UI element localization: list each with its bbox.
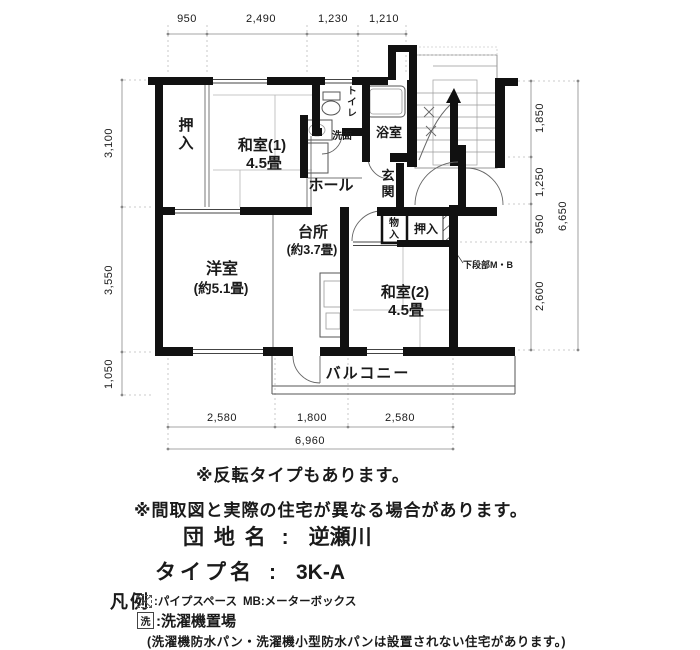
room-bath: 浴室 (376, 125, 402, 140)
floorplan-drawing: 押入 和室(1) 4.5畳 トイレ 洗面 浴室 玄関 ホール 台所 (約3.7畳… (0, 0, 700, 460)
room-washitsu2-name: 和室(2) (381, 283, 429, 301)
dim-right-total: 6,650 (557, 201, 569, 231)
dim-right-1: 1,850 (534, 103, 546, 133)
bathtub-icon (367, 86, 405, 117)
dim-left-3: 1,050 (103, 359, 115, 389)
danchi-name-separator: : (282, 526, 289, 550)
washer-text: :洗濯機置場 (156, 610, 236, 631)
dim-top-3: 1,230 (318, 13, 348, 25)
legend-pipe-space-row: :パイプスペース MB:メーターボックス (137, 593, 356, 609)
danchi-name-value: 逆瀬川 (309, 521, 372, 551)
room-balcony: バルコニー (326, 365, 411, 382)
room-yoshitsu-size: (約5.1畳) (194, 280, 249, 296)
pipe-space-icon (137, 595, 152, 608)
note-reverse-type: ※反転タイプもあります。 (196, 461, 410, 486)
dim-bottom-2: 1,800 (297, 412, 327, 424)
staircase (415, 47, 497, 168)
danchi-name-row: 団 地 名 : 逆瀬川 (183, 521, 372, 551)
room-washitsu1-name: 和室(1) (238, 136, 286, 154)
toilet-icon (322, 92, 340, 115)
meter-box-text: MB:メーターボックス (243, 593, 356, 609)
legend-washer-row: 洗 :洗濯機置場 (137, 610, 236, 631)
dim-top-4: 1,210 (369, 13, 399, 25)
floorplan-page: { "plan": { "rooms": { "oshiire1": "押入",… (0, 0, 700, 650)
room-yoshitsu-name: 洋室 (206, 259, 238, 278)
room-hall: ホール (308, 177, 353, 194)
balcony-door-arc (293, 356, 320, 383)
dim-right-3: 950 (534, 214, 546, 234)
dim-right-4: 2,600 (534, 281, 546, 311)
label-kadanbu-mb: 下段部M・B (463, 259, 513, 270)
dim-left-2: 3,550 (103, 265, 115, 295)
room-toilet: トイレ (347, 86, 357, 119)
type-name-row: タイプ名 : 3K-A (155, 556, 345, 586)
dim-top-1: 950 (177, 13, 197, 25)
stair-direction-arrow (419, 88, 461, 166)
type-name-value: 3K-A (296, 561, 345, 585)
room-senmen: 洗面 (332, 129, 352, 142)
pipe-space-text: :パイプスペース (154, 593, 237, 609)
washer-symbol-icon: 洗 (137, 612, 154, 629)
dim-top-2: 2,490 (246, 13, 276, 25)
dim-left-1: 3,100 (103, 128, 115, 158)
room-oshiire-1: 押入 (178, 116, 193, 152)
dim-bottom-3: 2,580 (385, 412, 415, 424)
note-disclaimer: ※間取図と実際の住宅が異なる場合があります。 (134, 496, 528, 521)
type-name-separator: : (269, 561, 276, 585)
room-genkan: 玄関 (381, 168, 394, 199)
dim-right-2: 1,250 (534, 167, 546, 197)
neighbor-door-arc (466, 168, 503, 205)
room-daidokoro-size: (約3.7畳) (287, 242, 338, 257)
thin-partitions (205, 85, 362, 347)
dim-bottom-1: 2,580 (207, 412, 237, 424)
room-oshiire-2: 押入 (414, 221, 438, 236)
room-daidokoro-name: 台所 (298, 223, 328, 241)
room-monoire: 物入 (389, 216, 399, 241)
legend-note: (洗濯機防水パン・洗濯機小型防水パンは設置されない住宅があります。) (147, 631, 566, 650)
danchi-name-label: 団 地 名 (183, 521, 268, 551)
type-name-label: タイプ名 (155, 556, 255, 586)
room-washitsu1-size: 4.5畳 (246, 155, 282, 172)
dim-bottom-total: 6,960 (295, 435, 325, 447)
room-washitsu2-size: 4.5畳 (388, 302, 424, 319)
